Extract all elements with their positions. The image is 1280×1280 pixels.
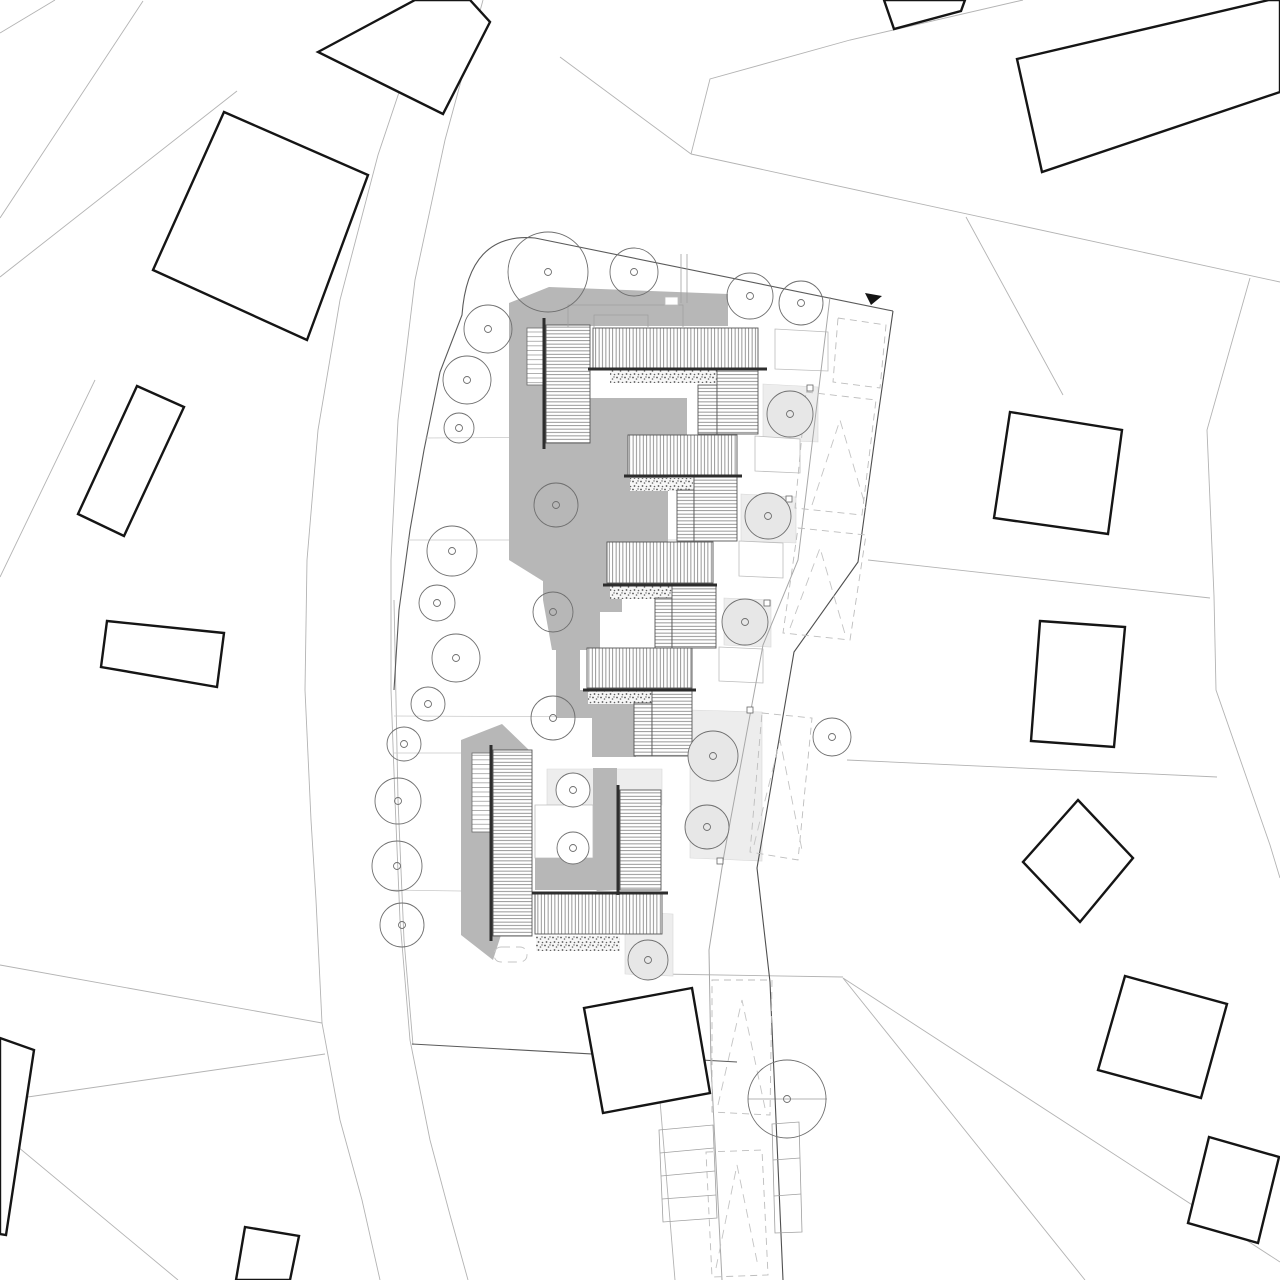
roof-main bbox=[493, 750, 532, 936]
parcel-line bbox=[0, 1, 143, 218]
parcel-line bbox=[0, 1054, 325, 1101]
tree-frontyard bbox=[688, 731, 738, 781]
tree-crown bbox=[813, 718, 851, 756]
gravel-strip bbox=[610, 370, 717, 383]
tree-crown bbox=[427, 526, 477, 576]
tree-frontyard bbox=[628, 940, 668, 980]
parcel-line bbox=[1207, 278, 1280, 878]
roof-annex bbox=[717, 369, 758, 434]
ramp-arrow bbox=[812, 420, 866, 508]
gravel-strip bbox=[610, 586, 672, 599]
parcel-line bbox=[560, 57, 691, 154]
roof-annex bbox=[672, 585, 716, 648]
gravel-strip bbox=[588, 691, 652, 704]
tree-crown bbox=[767, 391, 813, 437]
neighbor-building bbox=[0, 1038, 34, 1235]
tree-crown bbox=[628, 940, 668, 980]
gravel-strip bbox=[630, 478, 694, 491]
street-curb bbox=[394, 600, 413, 1045]
gravel-strip bbox=[536, 936, 620, 951]
tree bbox=[464, 305, 512, 353]
tree-crown bbox=[779, 281, 823, 325]
markers bbox=[865, 293, 882, 305]
tree-trunk bbox=[545, 269, 552, 276]
tree-frontyard bbox=[722, 599, 768, 645]
tree-frontyard bbox=[767, 391, 813, 437]
tree-crown bbox=[685, 805, 729, 849]
neighbor-building bbox=[236, 1227, 299, 1280]
tree-courtyard bbox=[557, 832, 589, 864]
tree bbox=[813, 718, 851, 756]
roof-wing bbox=[535, 894, 662, 934]
roof-low bbox=[472, 753, 490, 832]
parcel-line bbox=[0, 1132, 178, 1280]
parcel-line bbox=[847, 760, 1217, 777]
parking-divider bbox=[773, 1158, 800, 1160]
tree-crown bbox=[444, 413, 474, 443]
parcel-line bbox=[691, 154, 1280, 282]
neighbor-building bbox=[1031, 621, 1125, 747]
tree-trunk bbox=[550, 715, 557, 722]
tree-crown bbox=[443, 356, 491, 404]
roof-annex bbox=[620, 790, 661, 890]
tree-crown bbox=[432, 634, 480, 682]
neighbor-building bbox=[884, 0, 965, 29]
tree-trunk bbox=[449, 548, 456, 555]
neighbor-building bbox=[78, 386, 184, 536]
tree-trunk bbox=[453, 655, 460, 662]
tree-crown bbox=[688, 731, 738, 781]
neighbor-buildings bbox=[0, 0, 1280, 1280]
neighbor-building bbox=[1017, 0, 1280, 172]
road-bay bbox=[833, 318, 886, 388]
neighbor-building bbox=[153, 112, 368, 340]
parcel-line bbox=[660, 974, 843, 977]
road-bay bbox=[706, 1150, 768, 1277]
entry-mark bbox=[665, 297, 678, 305]
roof-rowhouse bbox=[587, 648, 692, 688]
post-marker bbox=[717, 858, 723, 864]
ramp-arrow bbox=[718, 1000, 765, 1108]
site-plan-canvas bbox=[0, 0, 1280, 1280]
tree-trunk bbox=[434, 600, 441, 607]
tree-crown bbox=[419, 585, 455, 621]
tree-trunk bbox=[394, 863, 401, 870]
parcel-line bbox=[0, 965, 322, 1023]
parking-divider bbox=[774, 1194, 801, 1196]
driveway bbox=[775, 329, 828, 371]
roof-main bbox=[546, 325, 590, 443]
parcel-line bbox=[966, 217, 1063, 395]
tree bbox=[779, 281, 823, 325]
neighbor-building bbox=[1098, 976, 1227, 1098]
tree-crown bbox=[387, 727, 421, 761]
roof-annex bbox=[652, 691, 692, 756]
tree-crown bbox=[557, 832, 589, 864]
tree-trunk bbox=[399, 922, 406, 929]
direction-arrow bbox=[865, 293, 882, 305]
tree-trunk bbox=[485, 326, 492, 333]
tree-trunk bbox=[829, 734, 836, 741]
parcel-line bbox=[0, 380, 95, 577]
post-marker bbox=[764, 600, 770, 606]
parcel-line bbox=[868, 560, 1210, 598]
roof-annex bbox=[698, 385, 717, 434]
driveway bbox=[739, 541, 783, 578]
tree-frontyard bbox=[745, 493, 791, 539]
tree bbox=[387, 727, 421, 761]
tree-crown bbox=[464, 305, 512, 353]
tree-trunk bbox=[401, 741, 408, 748]
roof-rowhouse bbox=[607, 542, 713, 583]
parcel-line bbox=[691, 0, 1023, 154]
neighbor-building bbox=[994, 412, 1122, 534]
tree-frontyard bbox=[685, 805, 729, 849]
tree bbox=[443, 356, 491, 404]
neighbor-building bbox=[318, 0, 490, 114]
roof-rowhouse bbox=[628, 435, 737, 475]
neighbor-building bbox=[1023, 800, 1133, 922]
tree-courtyard bbox=[556, 773, 590, 807]
post-marker bbox=[807, 385, 813, 391]
tree bbox=[610, 248, 658, 296]
tree-crown bbox=[745, 493, 791, 539]
post-marker bbox=[786, 496, 792, 502]
tree bbox=[432, 634, 480, 682]
post-marker bbox=[747, 707, 753, 713]
tree bbox=[444, 413, 474, 443]
tree-crown bbox=[610, 248, 658, 296]
road-bay bbox=[783, 528, 866, 640]
roof-annex bbox=[655, 598, 672, 648]
tree bbox=[419, 585, 455, 621]
driveway bbox=[719, 647, 763, 683]
parcel-line bbox=[0, 0, 55, 33]
tree bbox=[727, 273, 773, 319]
ramp-arrow bbox=[716, 1165, 758, 1268]
tree-trunk bbox=[456, 425, 463, 432]
parcel-line bbox=[843, 978, 1085, 1280]
roof-wing bbox=[593, 328, 758, 368]
car-outline bbox=[494, 947, 527, 962]
neighbor-building bbox=[584, 988, 710, 1113]
neighbor-building bbox=[101, 621, 224, 687]
roof-annex bbox=[677, 490, 694, 541]
tree-trunk bbox=[747, 293, 754, 300]
roof-low bbox=[527, 328, 543, 385]
tree-crown bbox=[727, 273, 773, 319]
tree-trunk bbox=[798, 300, 805, 307]
tree-trunk bbox=[464, 377, 471, 384]
roof-annex bbox=[634, 703, 652, 756]
neighbor-building bbox=[1188, 1137, 1279, 1243]
street-right-edge bbox=[391, 0, 483, 1280]
tree-trunk bbox=[631, 269, 638, 276]
roof-annex bbox=[694, 477, 737, 541]
site-plan-drawing bbox=[0, 0, 1280, 1280]
tree-trunk bbox=[425, 701, 432, 708]
tree-crown bbox=[556, 773, 590, 807]
tree-crown bbox=[722, 599, 768, 645]
tree bbox=[427, 526, 477, 576]
driveway bbox=[755, 436, 800, 473]
